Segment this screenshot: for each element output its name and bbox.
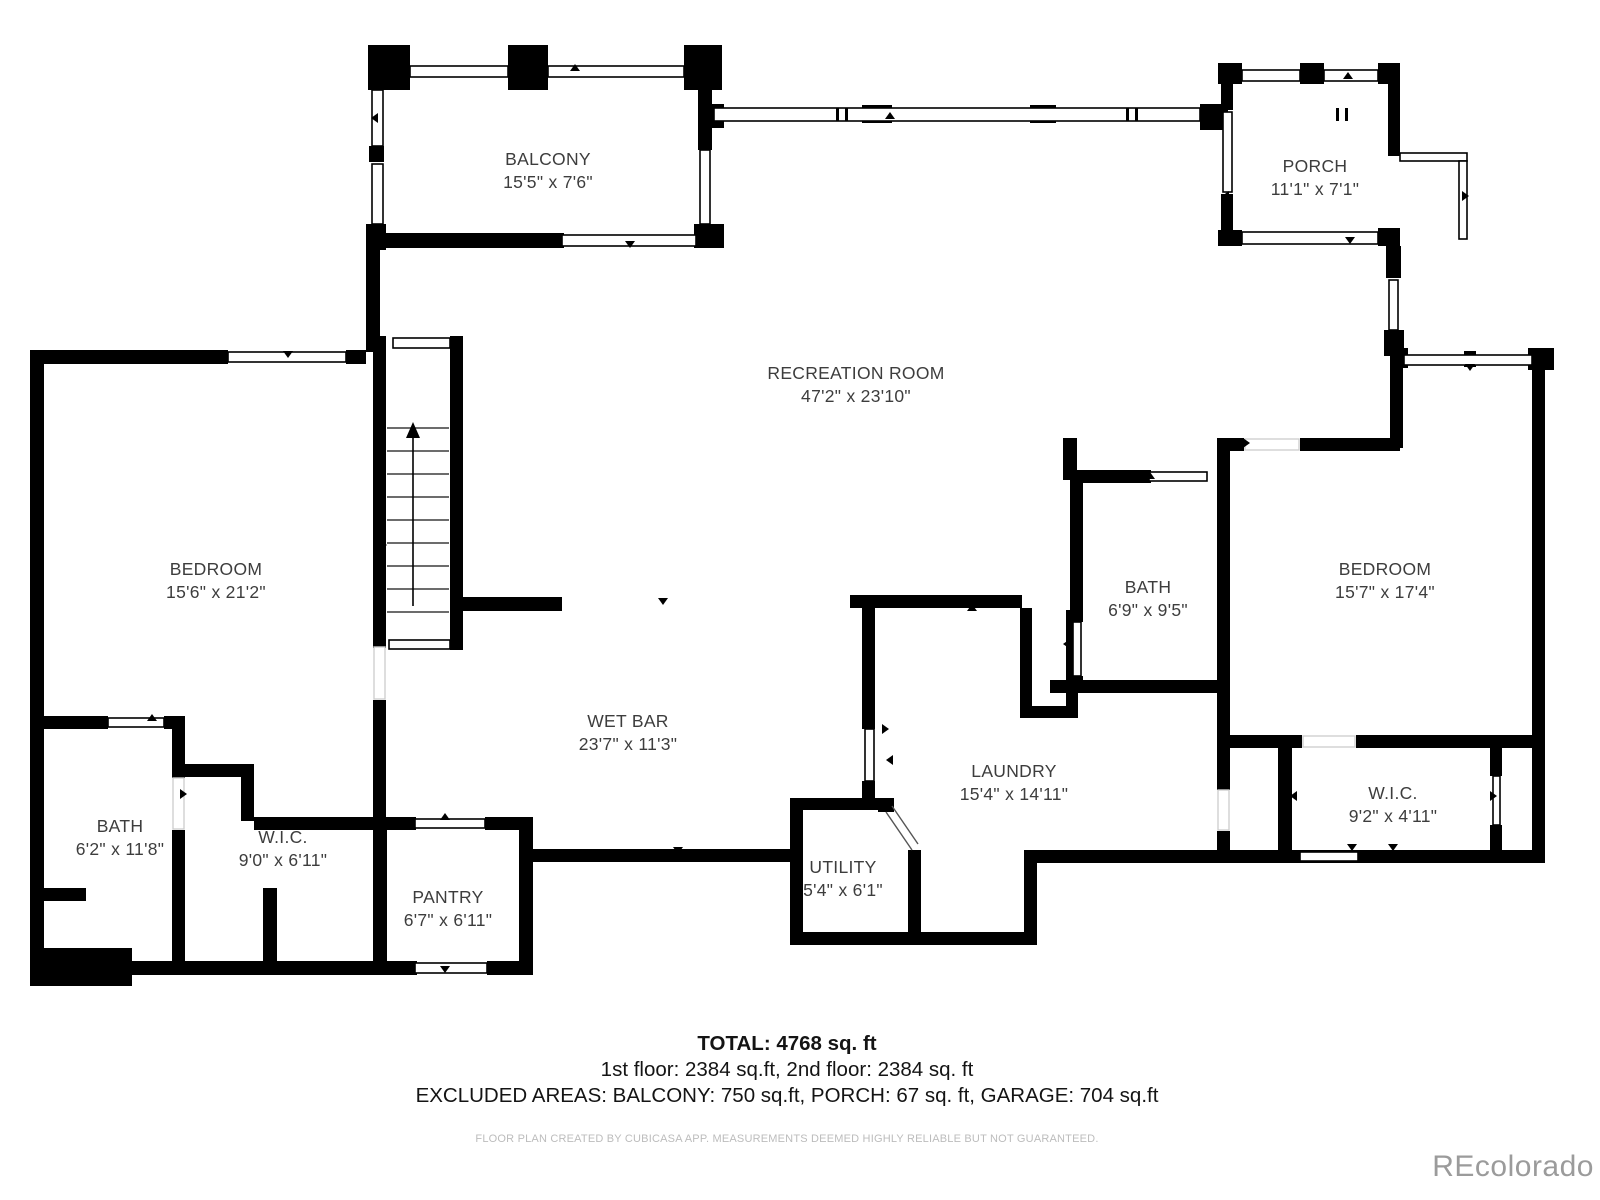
room-dims: 15'4" x 14'11" xyxy=(960,783,1069,806)
room-name: PORCH xyxy=(1271,155,1360,178)
room-label-wet-bar: WET BAR 23'7" x 11'3" xyxy=(579,710,678,756)
room-dims: 11'1" x 7'1" xyxy=(1271,178,1360,201)
room-label-utility: UTILITY 5'4" x 6'1" xyxy=(803,856,883,902)
total-area-text: TOTAL: 4768 sq. ft xyxy=(187,1031,1387,1057)
room-label-wic-right: W.I.C. 9'2" x 4'11" xyxy=(1349,782,1438,828)
room-dims: 15'6" x 21'2" xyxy=(166,581,266,604)
room-name: BATH xyxy=(76,815,165,838)
room-name: BATH xyxy=(1108,576,1188,599)
floor-plan-page: BALCONY 15'5" x 7'6" PORCH 11'1" x 7'1" … xyxy=(0,0,1600,1200)
room-name: UTILITY xyxy=(803,856,883,879)
room-label-bath-left: BATH 6'2" x 11'8" xyxy=(76,815,165,861)
room-label-wic-left: W.I.C. 9'0" x 6'11" xyxy=(239,826,328,872)
room-name: WET BAR xyxy=(579,710,678,733)
room-label-bath-middle: BATH 6'9" x 9'5" xyxy=(1108,576,1188,622)
room-name: LAUNDRY xyxy=(960,760,1069,783)
room-dims: 47'2" x 23'10" xyxy=(767,385,944,408)
room-dims: 5'4" x 6'1" xyxy=(803,879,883,902)
room-dims: 6'9" x 9'5" xyxy=(1108,599,1188,622)
room-dims: 6'7" x 6'11" xyxy=(404,909,493,932)
room-label-bedroom-right: BEDROOM 15'7" x 17'4" xyxy=(1335,558,1435,604)
room-dims: 15'5" x 7'6" xyxy=(503,171,593,194)
area-summary: TOTAL: 4768 sq. ft 1st floor: 2384 sq.ft… xyxy=(187,1031,1387,1109)
room-name: PANTRY xyxy=(404,886,493,909)
room-name: W.I.C. xyxy=(239,826,328,849)
staircase xyxy=(387,422,449,612)
room-dims: 9'2" x 4'11" xyxy=(1349,805,1438,828)
room-label-laundry: LAUNDRY 15'4" x 14'11" xyxy=(960,760,1069,806)
floor-areas-text: 1st floor: 2384 sq.ft, 2nd floor: 2384 s… xyxy=(187,1057,1387,1083)
room-label-pantry: PANTRY 6'7" x 6'11" xyxy=(404,886,493,932)
room-dims: 6'2" x 11'8" xyxy=(76,838,165,861)
room-name: W.I.C. xyxy=(1349,782,1438,805)
watermark-text: REcolorado xyxy=(1432,1150,1594,1184)
door-swing-lines xyxy=(886,806,918,850)
room-label-bedroom-left: BEDROOM 15'6" x 21'2" xyxy=(166,558,266,604)
room-dims: 15'7" x 17'4" xyxy=(1335,581,1435,604)
disclaimer-text: FLOOR PLAN CREATED BY CUBICASA APP. MEAS… xyxy=(187,1133,1387,1145)
room-dims: 23'7" x 11'3" xyxy=(579,733,678,756)
room-name: BEDROOM xyxy=(166,558,266,581)
excluded-areas-text: EXCLUDED AREAS: BALCONY: 750 sq.ft, PORC… xyxy=(187,1083,1387,1109)
room-label-porch: PORCH 11'1" x 7'1" xyxy=(1271,155,1360,201)
room-name: RECREATION ROOM xyxy=(767,362,944,385)
room-dims: 9'0" x 6'11" xyxy=(239,849,328,872)
room-label-balcony: BALCONY 15'5" x 7'6" xyxy=(503,148,593,194)
room-name: BEDROOM xyxy=(1335,558,1435,581)
room-label-recreation-room: RECREATION ROOM 47'2" x 23'10" xyxy=(767,362,944,408)
room-name: BALCONY xyxy=(503,148,593,171)
door-openings-layer xyxy=(173,439,1355,830)
